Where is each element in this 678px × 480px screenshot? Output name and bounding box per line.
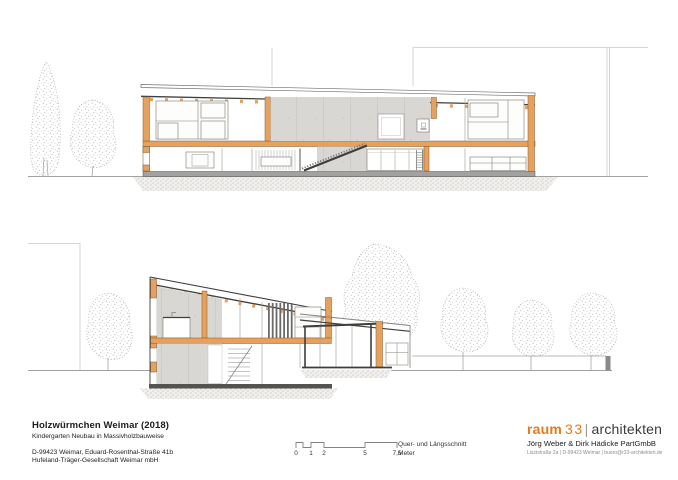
timber-column (265, 97, 271, 141)
scale-tick-0: 0 (294, 450, 298, 457)
concrete-wall-ground (317, 147, 367, 172)
concrete-core-wall (271, 97, 431, 141)
scale-bar (296, 443, 397, 449)
left-wall-upper (143, 97, 150, 171)
project-subtitle: Kindergarten Neubau in Massivholzbauweis… (32, 433, 173, 440)
longitudinal-section-drawing (28, 48, 648, 192)
tree-tall-left (31, 62, 61, 176)
foundation-gravel-lower-wing (300, 370, 392, 379)
scale-caption-line1: Quer- und Längsschnitt (398, 440, 467, 449)
logo-wordmark: raum33|architekten (527, 421, 662, 437)
logo-word-raum: raum (527, 421, 562, 437)
base-slab-lower (149, 384, 332, 389)
logo-separator: | (585, 421, 589, 437)
upper-floor-rooms (156, 97, 524, 141)
project-address: D-99423 Weimar, Eduard-Rosenthal-Straße … (32, 449, 173, 465)
tree-mid-right (441, 288, 488, 371)
scale-tick-5: 5 (363, 450, 367, 457)
cross-section-drawing (28, 244, 617, 400)
project-title: Holzwürmchen Weimar (2018) (32, 420, 173, 431)
foundation-gravel-lower-tall (140, 389, 338, 400)
tree-right-1 (512, 300, 554, 371)
scale-caption-line2: Meter (398, 449, 467, 458)
drawing-sheet: Holzwürmchen Weimar (2018) Kindergarten … (0, 0, 678, 480)
ground-slab-upper (143, 172, 535, 177)
floor-slab-wood-upper (143, 141, 535, 147)
scale-tick-1: 1 (309, 450, 313, 457)
timber-post-upper (202, 291, 207, 338)
scale-tick-2: 2 (322, 450, 326, 457)
timber-column-wing (376, 322, 383, 368)
title-block: Holzwürmchen Weimar (2018) Kindergarten … (32, 420, 173, 465)
foundation-gravel-upper (133, 177, 558, 191)
timber-column-short (431, 98, 437, 119)
section-drawings (0, 0, 678, 480)
glass-facade-ground (367, 149, 423, 171)
timber-post-right (326, 298, 332, 339)
scale-caption: Quer- und Längsschnitt Meter (398, 440, 467, 458)
timber-column-ground (424, 147, 429, 172)
garden-wall-section (606, 356, 611, 371)
logo-contact-line: Lisztstraße 2a | D-99423 Weimar | buero@… (527, 450, 662, 456)
tree-round-left (70, 100, 116, 176)
bench-right (470, 157, 526, 171)
logo-partners-line: Jörg Weber & Dirk Hädicke PartGmbB (527, 439, 662, 448)
logo-word-33: 33 (565, 421, 584, 437)
desk (261, 157, 291, 166)
architect-logo-block: raum33|architekten Jörg Weber & Dirk Häd… (527, 421, 662, 456)
logo-word-architekten: architekten (591, 421, 662, 437)
cabinet-upper (295, 307, 321, 338)
basketball-hoop (417, 119, 429, 132)
context-building-lines-lower (28, 244, 80, 371)
tree-left-lower (87, 293, 132, 371)
address-line-2: Hufeland-Träger-Gesellschaft Weimar mbH (32, 457, 173, 465)
timber-column-right-edge (528, 96, 535, 172)
address-line-1: D-99423 Weimar, Eduard-Rosenthal-Straße … (32, 449, 173, 457)
